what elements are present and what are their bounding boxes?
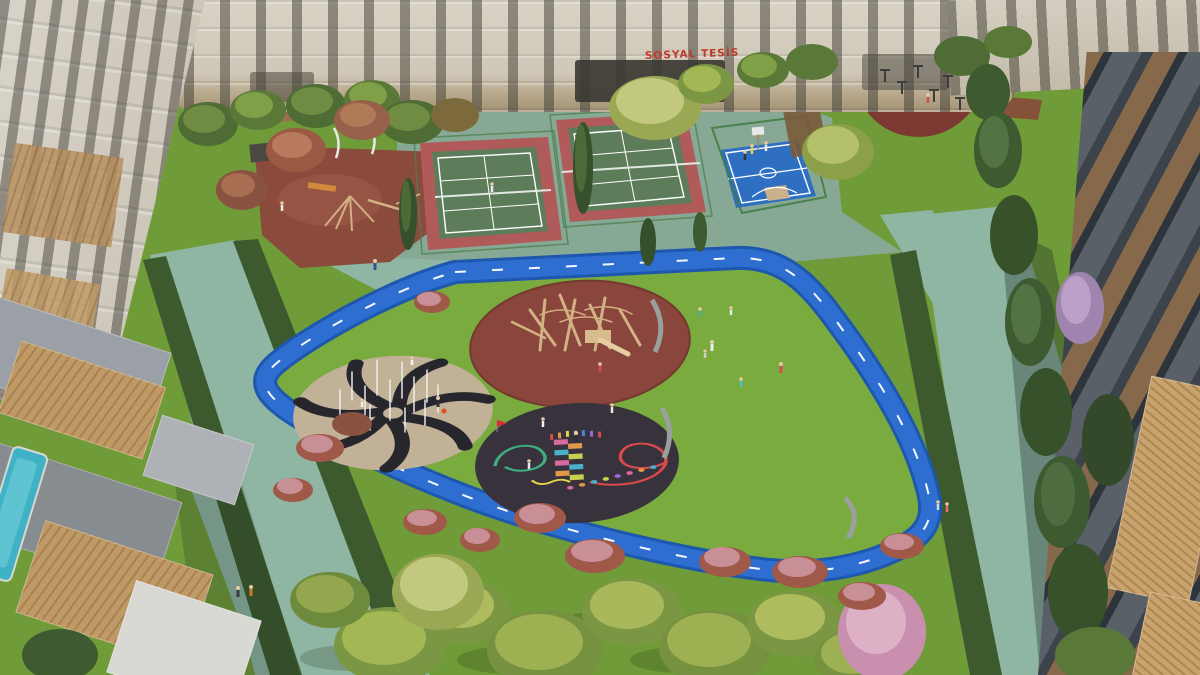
person	[541, 417, 545, 427]
red-flag	[497, 420, 507, 432]
person	[236, 586, 240, 597]
person	[410, 356, 413, 365]
person-fitness	[926, 93, 930, 103]
rooftop-pool	[0, 446, 49, 583]
person-basketball	[764, 141, 768, 151]
cypress-trees	[399, 122, 707, 266]
person-basketball	[750, 144, 754, 154]
person	[945, 502, 949, 512]
person	[249, 585, 253, 596]
person	[280, 201, 284, 211]
ball	[442, 409, 447, 414]
person	[779, 362, 783, 373]
facade-sign: SOSYAL TESİS	[645, 45, 740, 62]
person-basketball	[743, 150, 747, 160]
person	[527, 459, 531, 469]
person	[436, 396, 440, 407]
person	[610, 403, 614, 413]
person	[574, 431, 578, 442]
person	[739, 377, 743, 387]
person	[598, 362, 602, 372]
person	[936, 500, 940, 510]
person	[710, 340, 714, 351]
person	[373, 259, 377, 270]
person	[729, 306, 733, 315]
climbing-structure	[512, 295, 640, 354]
aerial-courtyard-render: SOSYAL TESİS	[0, 0, 1200, 675]
person	[703, 349, 706, 358]
person	[360, 398, 363, 407]
person-tennis	[490, 182, 494, 192]
person	[698, 307, 702, 317]
overlay-layer: SOSYAL TESİS	[0, 0, 1200, 675]
trees-east	[966, 64, 1135, 675]
